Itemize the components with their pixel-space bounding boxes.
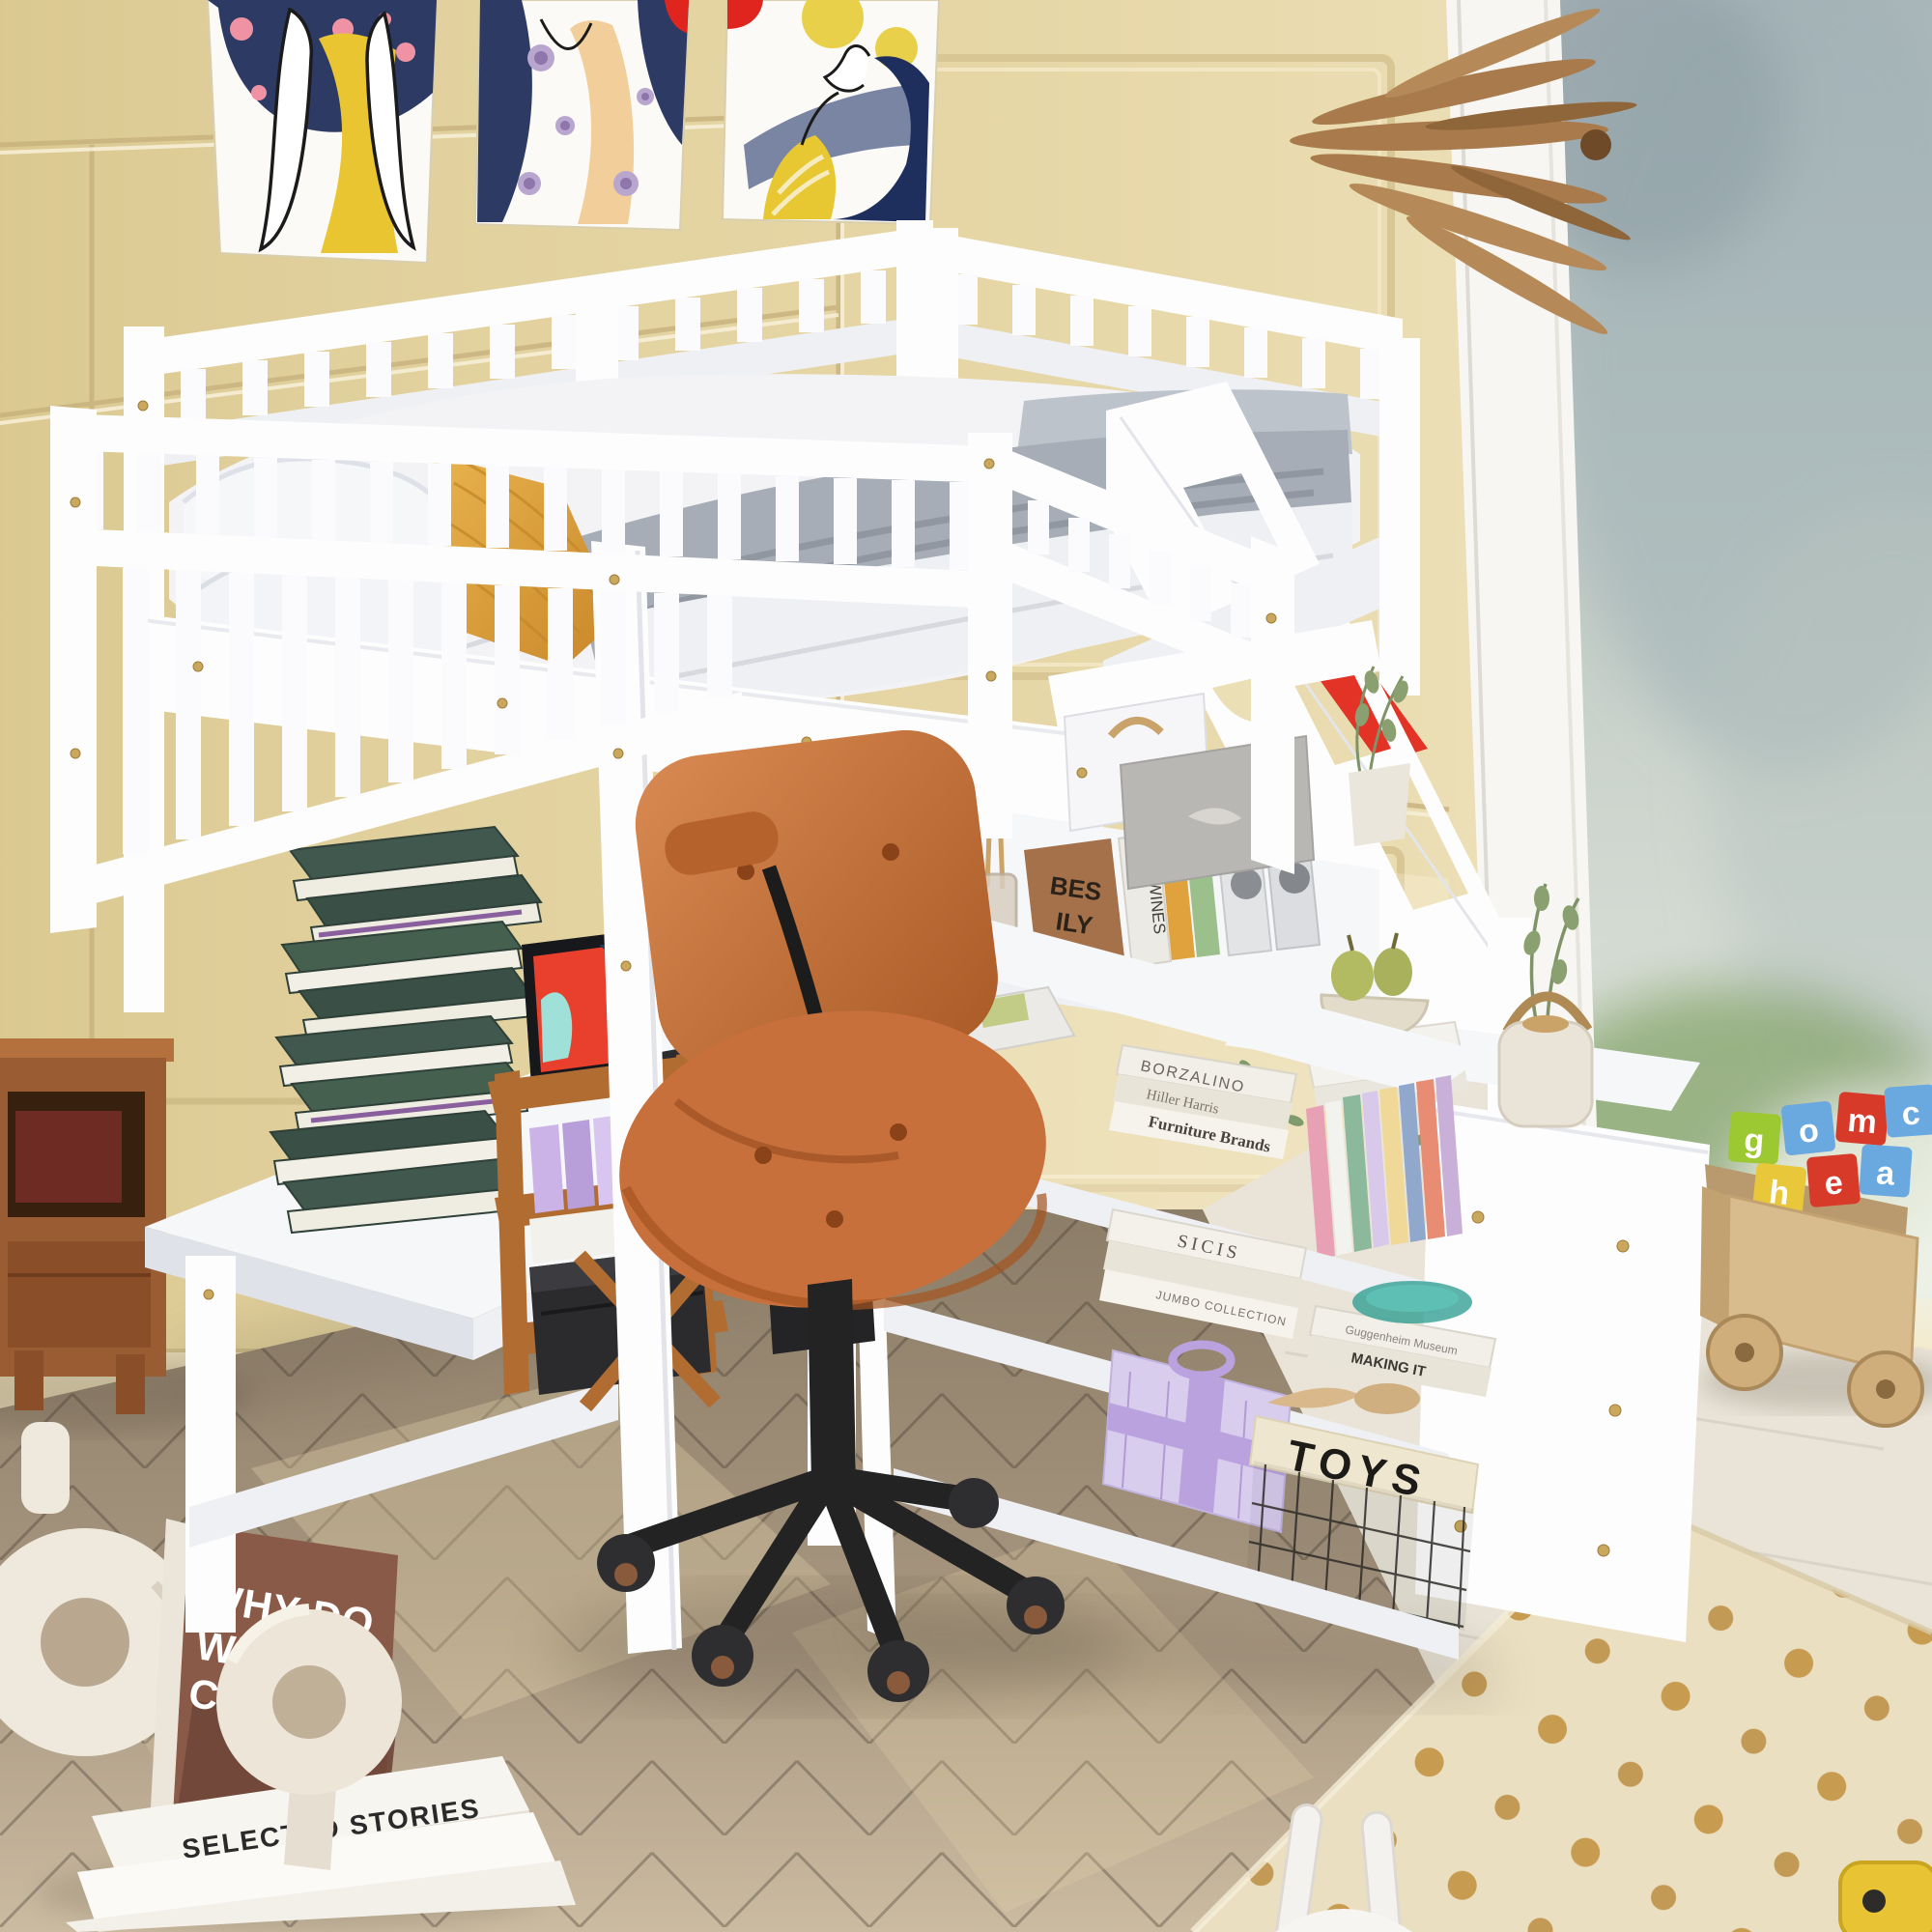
- svg-text:c: c: [1900, 1094, 1921, 1132]
- svg-text:e: e: [1823, 1164, 1844, 1203]
- poster-1: [208, 0, 437, 263]
- loft-bed-room-photo: WHY DO WE LOVE CATS SELECTED STORIES: [0, 0, 1932, 1932]
- brown-book-text2: ILY: [1054, 906, 1094, 940]
- poster-2: [475, 0, 689, 230]
- guard-rail-divider-post: [968, 433, 1012, 838]
- svg-text:m: m: [1846, 1102, 1878, 1141]
- tablet-art-teal: [541, 992, 572, 1063]
- guard-end-post: [1251, 536, 1294, 874]
- svg-text:o: o: [1797, 1112, 1821, 1151]
- desk-leg-left: [185, 1256, 236, 1633]
- yellow-toy: [1840, 1862, 1932, 1932]
- svg-text:g: g: [1743, 1122, 1765, 1159]
- poster-3: [723, 0, 939, 224]
- bed-post-end-left: [50, 406, 97, 933]
- svg-text:a: a: [1875, 1154, 1897, 1192]
